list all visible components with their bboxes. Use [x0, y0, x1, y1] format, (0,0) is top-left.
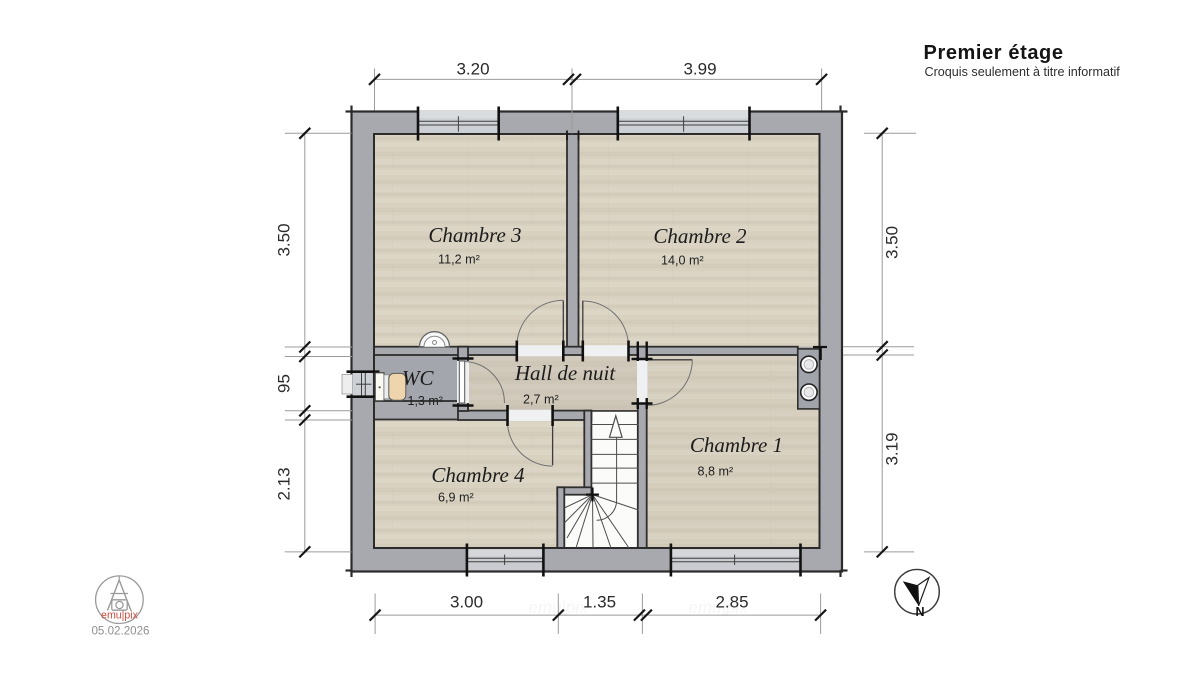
- svg-text:1,3 m²: 1,3 m²: [408, 394, 443, 408]
- svg-text:3.50: 3.50: [275, 223, 294, 256]
- svg-text:Croquis seulement à titre info: Croquis seulement à titre informatif: [925, 65, 1121, 79]
- svg-text:8,8 m²: 8,8 m²: [698, 465, 734, 479]
- svg-text:3.20: 3.20: [456, 60, 489, 79]
- svg-text:emu|pix: emu|pix: [528, 598, 588, 617]
- svg-text:14,0 m²: 14,0 m²: [661, 254, 704, 268]
- svg-text:2,7 m²: 2,7 m²: [523, 393, 559, 407]
- svg-text:3.19: 3.19: [883, 432, 902, 465]
- svg-text:1.35: 1.35: [583, 593, 616, 612]
- svg-text:emu|pix: emu|pix: [101, 610, 139, 622]
- svg-text:11,2 m²: 11,2 m²: [438, 253, 480, 267]
- svg-text:Chambre 2: Chambre 2: [653, 224, 747, 248]
- svg-text:Chambre 4: Chambre 4: [431, 463, 525, 487]
- svg-text:6,9 m²: 6,9 m²: [438, 491, 474, 505]
- svg-text:Premier étage: Premier étage: [924, 42, 1064, 64]
- svg-text:2.13: 2.13: [275, 467, 294, 500]
- svg-text:3.00: 3.00: [450, 593, 483, 612]
- svg-text:WC: WC: [402, 366, 434, 390]
- svg-text:Chambre 3: Chambre 3: [428, 223, 521, 247]
- svg-text:3.99: 3.99: [683, 60, 716, 79]
- svg-text:Chambre 1: Chambre 1: [690, 433, 783, 457]
- svg-text:95: 95: [275, 374, 294, 393]
- svg-text:emu|pix: emu|pix: [688, 598, 748, 617]
- svg-text:05.02.2026: 05.02.2026: [91, 625, 149, 638]
- svg-text:Hall de nuit: Hall de nuit: [514, 361, 616, 385]
- svg-text:N: N: [915, 605, 924, 619]
- svg-text:3.50: 3.50: [883, 226, 902, 259]
